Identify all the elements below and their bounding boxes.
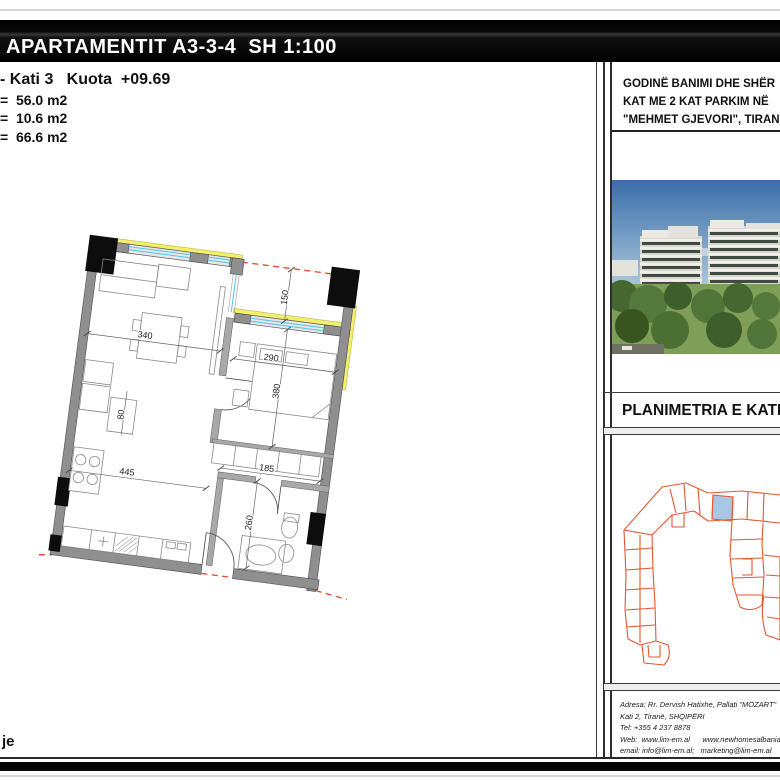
section-title: PLANIMETRIA E KATI: [622, 402, 780, 420]
counter-hatch: [115, 535, 138, 554]
building-left: [640, 226, 702, 292]
drawing-sheet: APARTAMENTIT A3-3-4 SH 1:100 - Kati 3 Ku…: [0, 0, 780, 780]
column-right: [307, 512, 326, 546]
address-rule: [604, 683, 780, 691]
dim-340: 340: [137, 329, 153, 341]
sink: [278, 543, 295, 563]
column-top-right: [327, 267, 360, 308]
toilet: [280, 516, 299, 539]
dim-445: 445: [119, 466, 135, 478]
living-furniture: [90, 257, 227, 374]
sheet-title: APARTAMENTIT A3-3-4 SH 1:100: [6, 36, 337, 59]
project-photo: [612, 180, 780, 354]
dim-150: 150: [279, 289, 291, 305]
column-left: [55, 477, 72, 506]
top-hairline: [0, 9, 780, 11]
wall-bath-left: [206, 478, 223, 566]
dim-80: 80: [115, 409, 126, 420]
building-right: [708, 220, 780, 292]
wall-step: [230, 258, 244, 275]
address-web: Web: www.lim-em.al www.newhomesalbania.a…: [620, 734, 780, 746]
section-top-rule: [604, 392, 780, 393]
wall-left: [51, 267, 97, 550]
area-balcony: = 10.6 m2: [0, 110, 67, 126]
address-email: email: info@lim-em.al; marketing@lim-em.…: [620, 745, 780, 757]
kitchen-furniture: [61, 360, 212, 563]
bath-door-arc: [250, 482, 281, 513]
section-double-rule: [604, 427, 780, 435]
project-line-3: "MEHMET GJEVORI", TIRAN: [623, 111, 780, 129]
wall-right: [307, 303, 354, 592]
dim-185: 185: [259, 462, 275, 474]
address-city: Kati 2, Tiranë, SHQIPËRI: [620, 711, 780, 723]
wall-bottom-bath: [232, 569, 319, 590]
frame-bottom-rule: [0, 757, 780, 759]
area-total: = 66.6 m2: [0, 129, 67, 145]
address-block: Adresa: Rr. Dervish Hatixhe, Pallati "MO…: [620, 699, 780, 757]
wall-divider-upper: [219, 318, 234, 376]
column-bottom-left: [49, 534, 62, 551]
bottom-hairline: [0, 775, 780, 777]
floor-line: - Kati 3 Kuota +09.69: [0, 71, 170, 89]
bottom-black-bar: [0, 762, 780, 771]
dim-260: 260: [243, 515, 255, 531]
footer-left-text: je: [2, 733, 15, 750]
road: [612, 344, 664, 354]
project-title-block: GODINË BANIMI DHE SHËR KAT ME 2 KAT PARK…: [612, 62, 780, 132]
area-apartment: = 56.0 m2: [0, 92, 67, 108]
address-line: Adresa: Rr. Dervish Hatixhe, Pallati "MO…: [620, 699, 780, 711]
vehicle: [622, 346, 632, 350]
dim-380: 380: [270, 383, 282, 399]
highlighted-unit: [712, 495, 733, 521]
apartment-floor-plan: 340 150 290 380 80 445 185: [35, 232, 375, 607]
address-phone: Tel: +355 4 237 8878: [620, 722, 780, 734]
dim-290: 290: [263, 352, 279, 364]
window-glass-side: [231, 274, 236, 312]
panel-double-border: [603, 62, 612, 758]
wall-divider-lower: [210, 409, 221, 444]
frame-divider: [596, 62, 597, 758]
project-line-1: GODINË BANIMI DHE SHËR: [623, 75, 780, 93]
site-key-plan: [612, 435, 780, 681]
project-line-2: KAT ME 2 KAT PARKIM NË: [623, 93, 780, 111]
